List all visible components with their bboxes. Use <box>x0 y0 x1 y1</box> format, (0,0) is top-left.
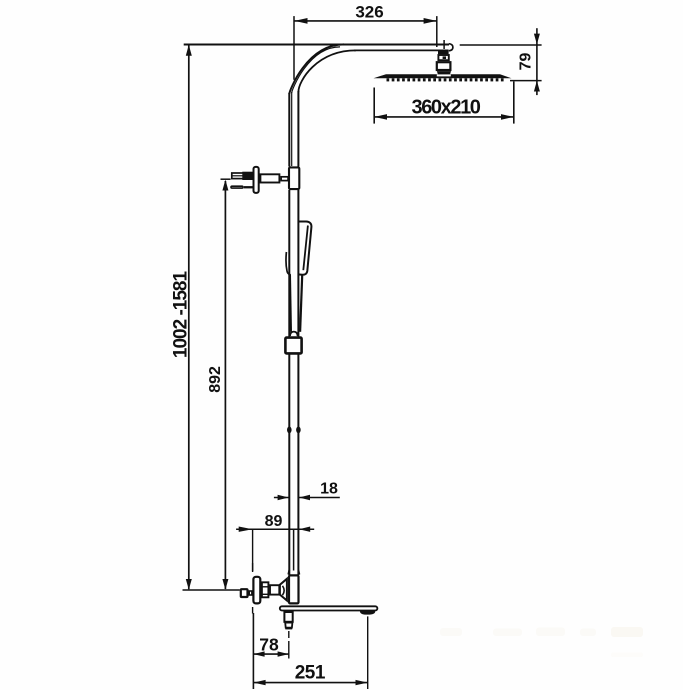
svg-text:326: 326 <box>355 2 383 21</box>
svg-text:892: 892 <box>207 366 224 393</box>
svg-text:89: 89 <box>265 513 283 530</box>
svg-text:1002 -1581: 1002 -1581 <box>170 271 191 359</box>
svg-text:360x210: 360x210 <box>411 96 480 118</box>
svg-text:79: 79 <box>517 53 534 71</box>
svg-text:78: 78 <box>259 634 279 654</box>
svg-text:18: 18 <box>320 481 338 498</box>
svg-text:251: 251 <box>295 662 326 683</box>
